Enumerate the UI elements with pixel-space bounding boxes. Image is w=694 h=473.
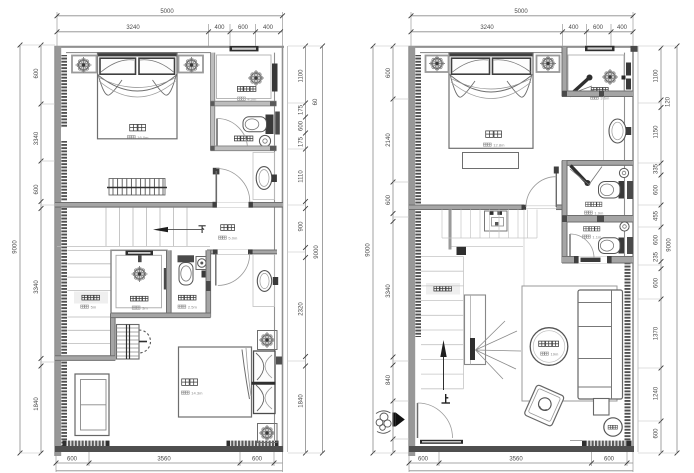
svg-text:3m: 3m [142, 306, 148, 311]
svg-text:5m: 5m [91, 305, 97, 310]
svg-text:1.9m: 1.9m [594, 211, 604, 216]
svg-text:9000: 9000 [13, 240, 19, 254]
svg-text:175: 175 [299, 104, 305, 115]
svg-text:1110: 1110 [299, 170, 305, 183]
svg-text:3240: 3240 [480, 25, 494, 31]
svg-text:5000: 5000 [514, 9, 528, 15]
svg-text:600: 600 [386, 67, 392, 78]
svg-text:400: 400 [568, 25, 579, 31]
svg-text:600: 600 [654, 428, 660, 439]
svg-text:1150: 1150 [654, 125, 660, 139]
svg-text:1100: 1100 [299, 69, 305, 83]
svg-text:3560: 3560 [157, 457, 171, 463]
svg-text:3560: 3560 [509, 457, 523, 463]
svg-text:2320: 2320 [299, 302, 305, 316]
svg-text:840: 840 [386, 374, 392, 385]
svg-text:3240: 3240 [126, 25, 140, 31]
svg-text:600: 600 [418, 457, 429, 463]
svg-text:600: 600 [67, 457, 78, 463]
svg-text:235: 235 [654, 251, 660, 262]
svg-text:9000: 9000 [667, 238, 673, 252]
svg-text:175: 175 [299, 136, 305, 147]
svg-text:3340: 3340 [34, 131, 40, 145]
svg-text:9000: 9000 [314, 245, 320, 259]
svg-text:2140: 2140 [386, 133, 392, 147]
svg-text:400: 400 [263, 25, 274, 31]
svg-text:9000: 9000 [366, 243, 372, 257]
svg-text:600: 600 [604, 457, 615, 463]
svg-text:2.5m: 2.5m [188, 305, 198, 310]
svg-text:1100: 1100 [654, 69, 660, 83]
svg-text:900: 900 [299, 221, 305, 232]
svg-text:400: 400 [617, 25, 628, 31]
svg-text:1370: 1370 [654, 326, 660, 340]
svg-text:600: 600 [34, 68, 40, 79]
svg-text:1840: 1840 [34, 397, 40, 411]
svg-text:5000: 5000 [160, 9, 174, 15]
svg-text:600: 600 [654, 184, 660, 195]
svg-text:455: 455 [654, 210, 660, 221]
svg-text:335: 335 [654, 163, 660, 174]
svg-text:12.8m: 12.8m [493, 143, 505, 148]
svg-text:1840: 1840 [299, 394, 305, 408]
svg-text:19m: 19m [551, 352, 559, 357]
svg-text:600: 600 [654, 277, 660, 288]
svg-text:600: 600 [252, 457, 263, 463]
svg-text:14.3m: 14.3m [191, 391, 203, 396]
svg-text:600: 600 [593, 25, 604, 31]
svg-text:4.0m: 4.0m [247, 97, 257, 102]
svg-text:1240: 1240 [654, 386, 660, 400]
svg-text:5.0m: 5.0m [228, 236, 238, 241]
svg-text:600: 600 [386, 194, 392, 205]
svg-text:600: 600 [654, 234, 660, 245]
svg-text:3340: 3340 [386, 284, 392, 298]
svg-text:3340: 3340 [34, 280, 40, 294]
svg-text:600: 600 [238, 25, 249, 31]
svg-text:400: 400 [214, 25, 225, 31]
svg-text:600: 600 [299, 120, 305, 131]
svg-text:600: 600 [34, 184, 40, 195]
svg-text:60: 60 [313, 98, 319, 105]
svg-text:120: 120 [666, 96, 672, 107]
